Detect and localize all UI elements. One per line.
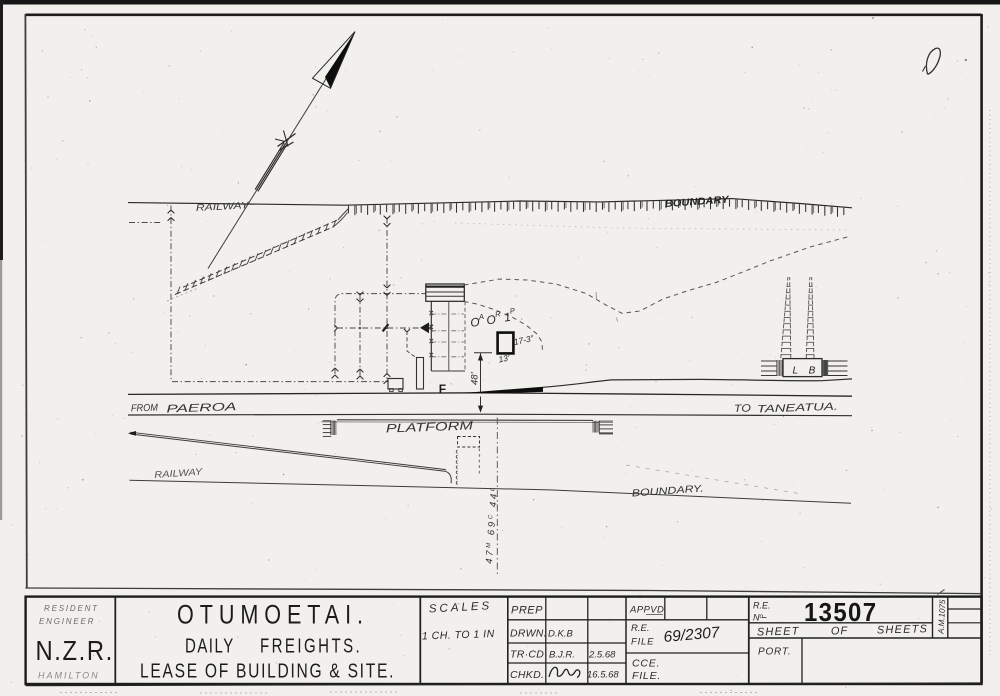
svg-text:L B: L B bbox=[793, 366, 820, 377]
svg-text:PREP: PREP bbox=[511, 605, 543, 617]
svg-text:1 CH. TO 1 IN: 1 CH. TO 1 IN bbox=[422, 628, 495, 643]
svg-text:FREIGHTS.: FREIGHTS. bbox=[260, 634, 362, 657]
svg-text:N.Z.R.: N.Z.R. bbox=[36, 634, 114, 666]
svg-text:FROM: FROM bbox=[131, 403, 159, 415]
svg-text:16.5.68: 16.5.68 bbox=[587, 670, 619, 681]
svg-text:FILE: FILE bbox=[631, 637, 654, 648]
svg-text:48’: 48’ bbox=[470, 371, 481, 385]
svg-text:ENGINEER: ENGINEER bbox=[39, 617, 95, 626]
svg-text:D.K.B: D.K.B bbox=[548, 629, 573, 640]
svg-text:HAMILTON: HAMILTON bbox=[38, 671, 100, 681]
svg-text:PAEROA: PAEROA bbox=[166, 401, 236, 415]
svg-text:13’: 13’ bbox=[498, 353, 511, 365]
svg-text:OTUMOETAI.: OTUMOETAI. bbox=[177, 600, 369, 630]
svg-text:TO: TO bbox=[734, 402, 751, 415]
svg-text:LEASE OF BUILDING & SITE.: LEASE OF BUILDING & SITE. bbox=[140, 660, 395, 682]
svg-text:F: F bbox=[439, 382, 446, 396]
svg-text:FILE.: FILE. bbox=[632, 670, 661, 682]
svg-text:SHEETS: SHEETS bbox=[877, 623, 929, 636]
svg-text:B.J.R.: B.J.R. bbox=[549, 650, 575, 661]
svg-text:OF: OF bbox=[831, 625, 849, 637]
svg-text:RESIDENT: RESIDENT bbox=[44, 604, 99, 613]
svg-text:DRWN.: DRWN. bbox=[510, 628, 547, 640]
svg-text:APPVD: APPVD bbox=[629, 605, 664, 616]
svg-text:TR·CD: TR·CD bbox=[510, 649, 544, 661]
svg-text:SHEET: SHEET bbox=[757, 625, 800, 638]
svg-text:R.E.: R.E. bbox=[753, 601, 771, 611]
svg-text:13507: 13507 bbox=[804, 598, 877, 627]
svg-text:R.E.: R.E. bbox=[631, 623, 649, 634]
svg-text:A.M.1075: A.M.1075 bbox=[936, 599, 947, 635]
svg-text:DAILY: DAILY bbox=[185, 634, 235, 657]
svg-text:CCE.: CCE. bbox=[632, 658, 660, 670]
svg-text:CHKD.: CHKD. bbox=[510, 669, 544, 681]
svg-text:PORT.: PORT. bbox=[758, 647, 791, 658]
svg-text:2.5.68: 2.5.68 bbox=[588, 650, 616, 661]
